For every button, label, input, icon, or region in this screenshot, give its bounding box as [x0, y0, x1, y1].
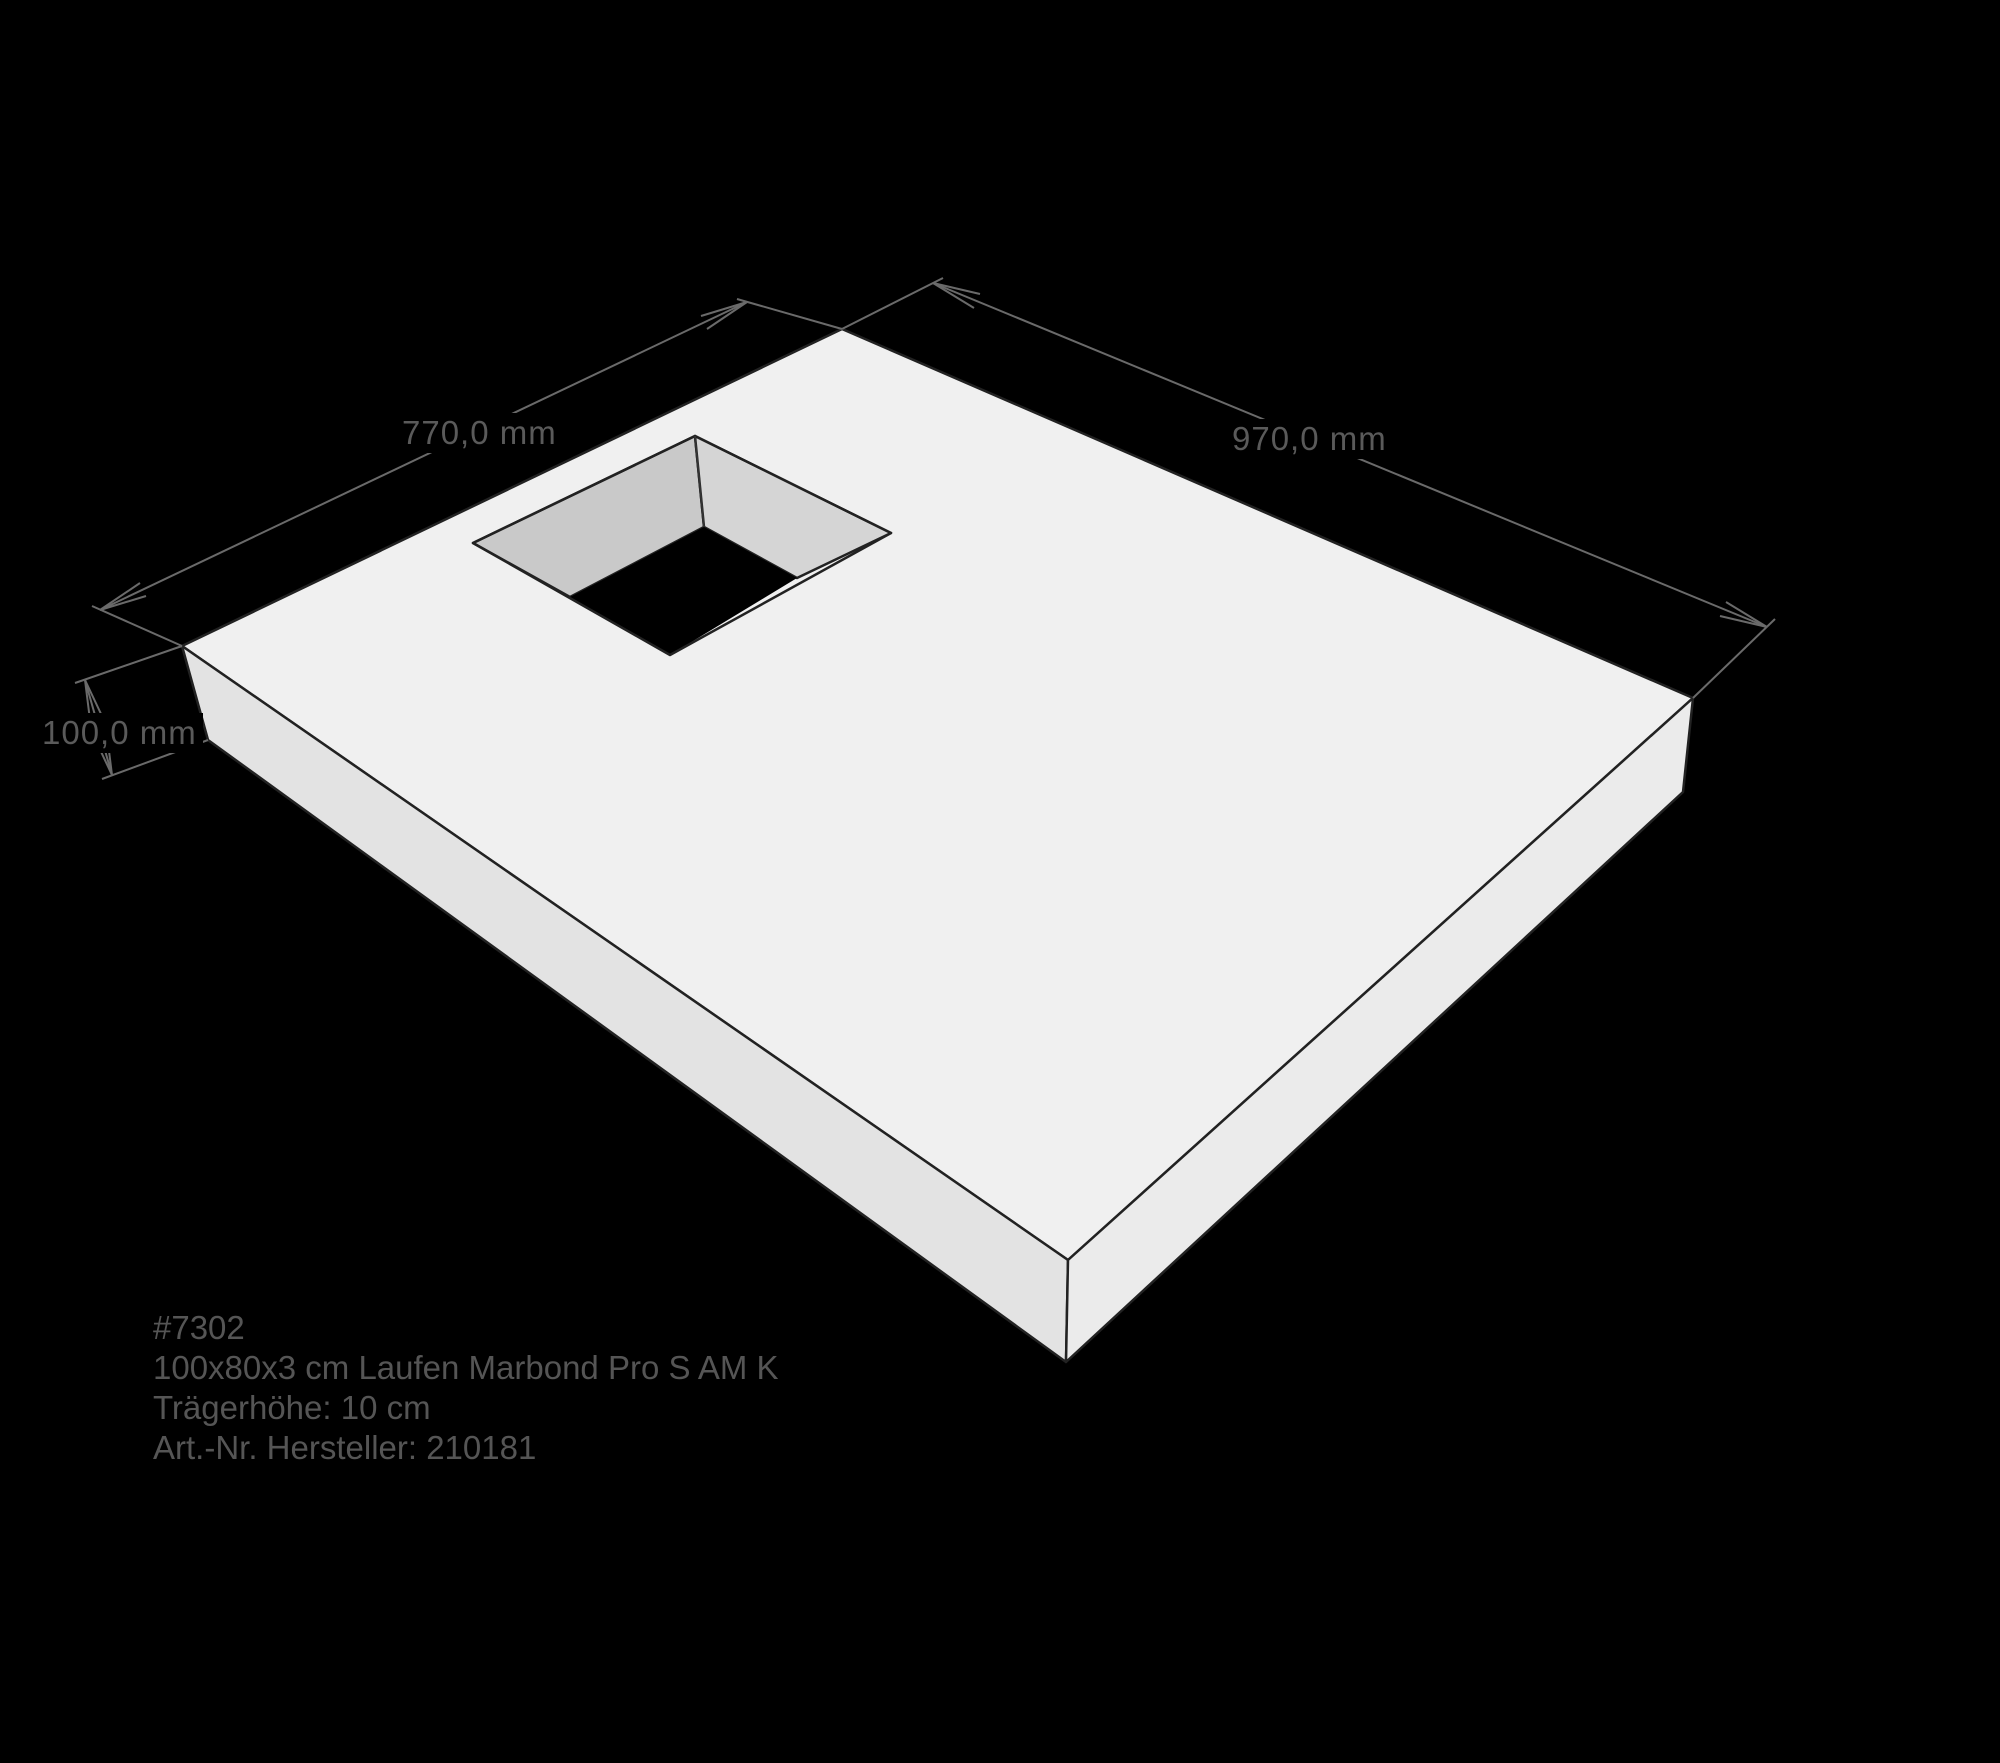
technical-drawing-page: 770,0 mm 970,0 mm 100,0 mm #7302 100x80x…	[0, 0, 2000, 1763]
dimension-depth-label: 970,0 mm	[1226, 419, 1393, 459]
dimension-height-label: 100,0 mm	[36, 713, 203, 753]
annotation-product-id: #7302	[153, 1308, 779, 1348]
slab	[182, 329, 1693, 1362]
annotation-carrier-height: Trägerhöhe: 10 cm	[153, 1388, 779, 1428]
annotation-product-description: 100x80x3 cm Laufen Marbond Pro S AM K	[153, 1348, 779, 1388]
drawing-canvas	[0, 0, 2000, 1763]
dimension-width-label: 770,0 mm	[396, 413, 563, 453]
product-annotation: #7302 100x80x3 cm Laufen Marbond Pro S A…	[153, 1308, 779, 1468]
annotation-article-number: Art.-Nr. Hersteller: 210181	[153, 1428, 779, 1468]
slab-top-face	[182, 329, 1693, 1260]
